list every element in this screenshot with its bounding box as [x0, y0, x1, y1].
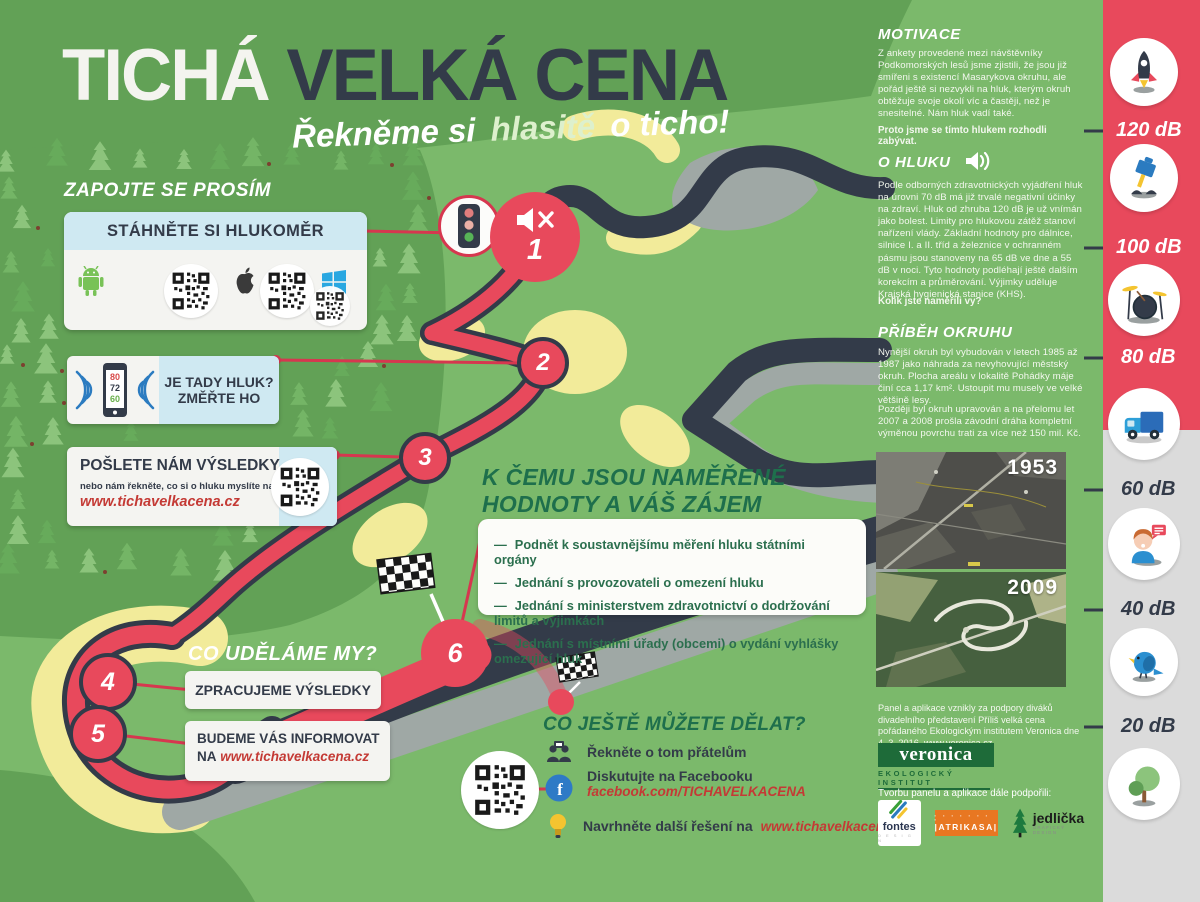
aerial-photo-1953: 1953	[876, 452, 1066, 569]
facebook-text: Diskutujte na Facebooku	[587, 768, 806, 784]
atrikasa-logo: ▪ ▪ ▪ ▪ ▪ ▪ ▪ ▪ |ATRIKASA|	[935, 810, 998, 836]
fontes-logo: fontes D E S I G N	[878, 800, 921, 846]
apple-icon	[232, 266, 258, 296]
facebook-icon[interactable]: f	[545, 774, 573, 802]
supporter-logos: fontes D E S I G N ▪ ▪ ▪ ▪ ▪ ▪ ▪ ▪ |ATRI…	[878, 800, 1086, 846]
truck-icon	[1108, 388, 1180, 460]
muted-speaker-icon	[515, 207, 555, 233]
inform-link[interactable]: www.tichavelkacena.cz	[220, 749, 369, 764]
speaker-icon	[965, 152, 991, 170]
photo-year-label: 2009	[1007, 576, 1058, 600]
marker-1: 1	[490, 192, 580, 282]
send-card-heading: POŠLETE NÁM VÝSLEDKY	[80, 457, 280, 475]
aerial-photo-2009: 2009	[876, 572, 1066, 687]
lightbulb-icon	[547, 812, 569, 840]
we-do-heading: CO UDĚLÁME MY?	[188, 643, 377, 666]
jackhammer-icon	[1110, 144, 1178, 212]
measure-line1: JE TADY HLUK?	[164, 374, 273, 390]
o-hluku-heading: O HLUKU	[878, 152, 1086, 171]
scale-label-20: 20 dB	[1121, 715, 1175, 738]
friends-icon	[545, 740, 573, 764]
motivace-bold: Proto jsme se tímto hlukem rozhodli zabý…	[878, 125, 1086, 147]
pribeh-p2: Později byl okruh upravován a na přelomu…	[878, 404, 1086, 440]
scale-label-100: 100 dB	[1116, 236, 1182, 259]
inform-na: NA	[197, 749, 217, 764]
download-card: STÁHNĚTE SI HLUKOMĚR	[64, 212, 367, 330]
suggest-row: Navrhněte další řešení na www.tichavelka…	[547, 812, 909, 840]
phone-noise-meter-icon: 80 72 60	[73, 362, 157, 418]
apple-qr-code	[260, 264, 314, 318]
title-white: TICHÁ	[62, 35, 269, 116]
o-hluku-body: Podle odborných zdravotnických vyjádření…	[878, 180, 1086, 301]
measure-line2: ZMĚŘTE HO	[178, 390, 260, 406]
scale-label-120: 120 dB	[1116, 119, 1182, 142]
send-card-note: nebo nám řekněte, co si o hluku myslíte …	[80, 481, 274, 492]
measure-card: JE TADY HLUK? ZMĚŘTE HO 80 72 60	[67, 356, 279, 424]
list-item: —Podnět k soustavnějšímu měření hluku st…	[494, 537, 850, 567]
svg-text:80: 80	[110, 372, 120, 382]
bird-icon	[1110, 628, 1178, 696]
scale-label-40: 40 dB	[1121, 598, 1175, 621]
purpose-heading: K ČEMU JSOU NAMĚŘENÉ HODNOTY A VÁŠ ZÁJEM	[482, 464, 786, 518]
marker-5: 5	[69, 705, 127, 763]
motivace-body: Z ankety provedené mezi návštěvníky Podk…	[878, 48, 1086, 121]
marker-3: 3	[399, 432, 451, 484]
pribeh-heading: PŘÍBĚH OKRUHU	[878, 324, 1086, 341]
process-results-card: ZPRACUJEME VÝSLEDKY	[185, 671, 381, 709]
more-heading: CO JEŠTĚ MŮŽETE DĚLAT?	[543, 714, 806, 736]
motivace-heading: MOTIVACE	[878, 26, 1086, 43]
inform-line1: BUDEME VÁS INFORMOVAT	[197, 731, 390, 746]
send-card-link[interactable]: www.tichavelkacena.cz	[80, 494, 240, 510]
photo-year-label: 1953	[1007, 456, 1058, 480]
suggest-text: Navrhněte další řešení na	[583, 818, 753, 834]
svg-text:60: 60	[110, 394, 120, 404]
join-heading: ZAPOJTE SE PROSÍM	[64, 180, 271, 202]
veronica-logo: veronica EKOLOGICKÝ INSTITUT	[878, 743, 994, 790]
marker-2: 2	[517, 337, 569, 389]
supporters-label: Tvorbu panelu a aplikace dále podpořili:	[878, 788, 1086, 799]
talking-person-icon	[1108, 508, 1180, 580]
purpose-list-card: —Podnět k soustavnějšímu měření hluku st…	[478, 519, 866, 615]
inform-card: BUDEME VÁS INFORMOVAT NA www.tichavelkac…	[185, 721, 390, 781]
marker-6: 6	[421, 619, 489, 687]
svg-text:72: 72	[110, 383, 120, 393]
pribeh-p1: Nynější okruh byl vybudován v letech 198…	[878, 347, 1086, 407]
page-title: TICHÁ VELKÁ CENA	[62, 34, 727, 117]
svg-text:f: f	[557, 780, 563, 799]
scale-label-80: 80 dB	[1121, 346, 1175, 369]
android-qr-code	[164, 264, 218, 318]
tell-friends-text: Řekněte o tom přátelům	[587, 744, 746, 760]
send-results-card: POŠLETE NÁM VÝSLEDKY nebo nám řekněte, c…	[67, 447, 337, 526]
download-card-header: STÁHNĚTE SI HLUKOMĚR	[64, 212, 367, 250]
android-icon	[78, 266, 104, 296]
facebook-link[interactable]: facebook.com/TICHAVELKACENA	[587, 784, 806, 799]
list-item: —Jednání s místními úřady (obcemi) o vyd…	[494, 636, 850, 666]
rocket-icon	[1110, 38, 1178, 106]
marker-4: 4	[79, 653, 137, 711]
o-hluku-bold: Kolik jste naměřili vy?	[878, 296, 1086, 307]
list-item: —Jednání s provozovateli o omezení hluku	[494, 575, 850, 590]
facebook-row: f Diskutujte na Facebooku facebook.com/T…	[545, 768, 806, 799]
tree-icon	[1108, 748, 1180, 820]
send-qr-code	[271, 458, 329, 516]
drums-icon	[1108, 264, 1180, 336]
jedlicka-logo: jedlička GRAFICKÝ DESIGN	[1012, 807, 1086, 839]
facebook-qr-code	[461, 751, 539, 829]
tell-friends-row: Řekněte o tom přátelům	[545, 740, 746, 764]
windows-qr-code	[310, 286, 350, 326]
list-item: —Jednání s ministerstvem zdravotnictví o…	[494, 598, 850, 628]
scale-label-60: 60 dB	[1121, 478, 1175, 501]
infographic-poster: TICHÁ VELKÁ CENA Řekněme si hlasitě o ti…	[0, 0, 1200, 902]
